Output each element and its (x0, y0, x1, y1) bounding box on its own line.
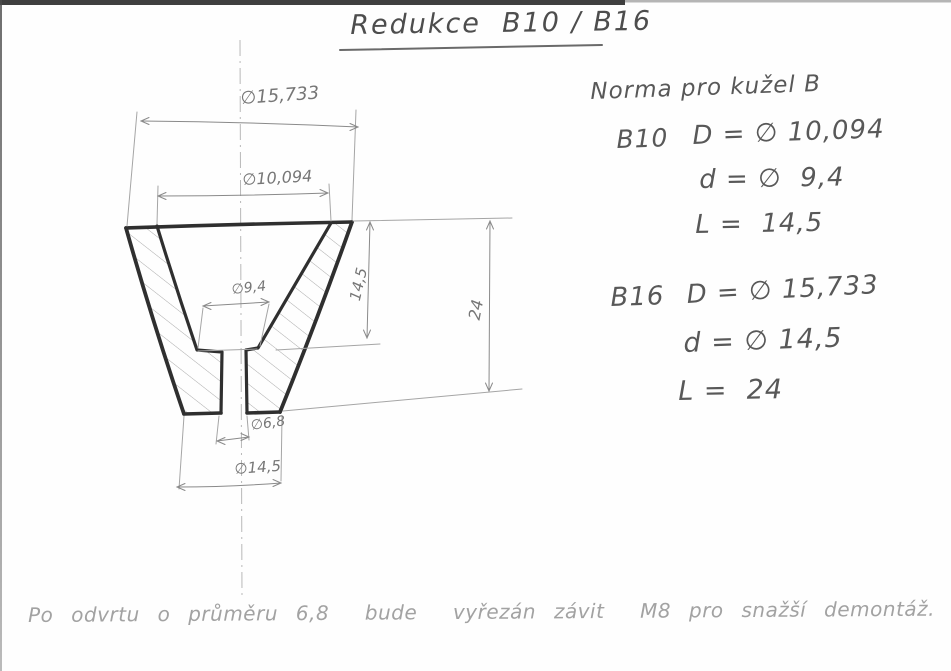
norm-b10-row-L: L = 14,5 (695, 209, 823, 240)
norm-b10-row-d: d = ∅ 9,4 (699, 163, 845, 194)
norm-b16-row-L: L = 24 (678, 375, 783, 407)
norm-b16-row-d: d = ∅ 14,5 (683, 323, 843, 358)
dim-overall-length-label: 24 (466, 298, 487, 321)
norm-b10-name: B10 (616, 124, 669, 153)
centerline (240, 40, 242, 600)
title-underline (340, 45, 602, 50)
dim-outer-bottom-label: ∅14,5 (234, 458, 282, 478)
page-title: Redukce B10 / B16 (350, 7, 652, 41)
dim-socket-top-label: ∅10,094 (242, 167, 313, 188)
scanned-sketch-page: Redukce B10 / B16 ∅15,733 ∅10,094 ∅9,4 1… (0, 0, 951, 671)
norm-b10-row-D: D = ∅ 10,094 (692, 115, 885, 150)
norm-b16-name: B16 (610, 282, 665, 312)
